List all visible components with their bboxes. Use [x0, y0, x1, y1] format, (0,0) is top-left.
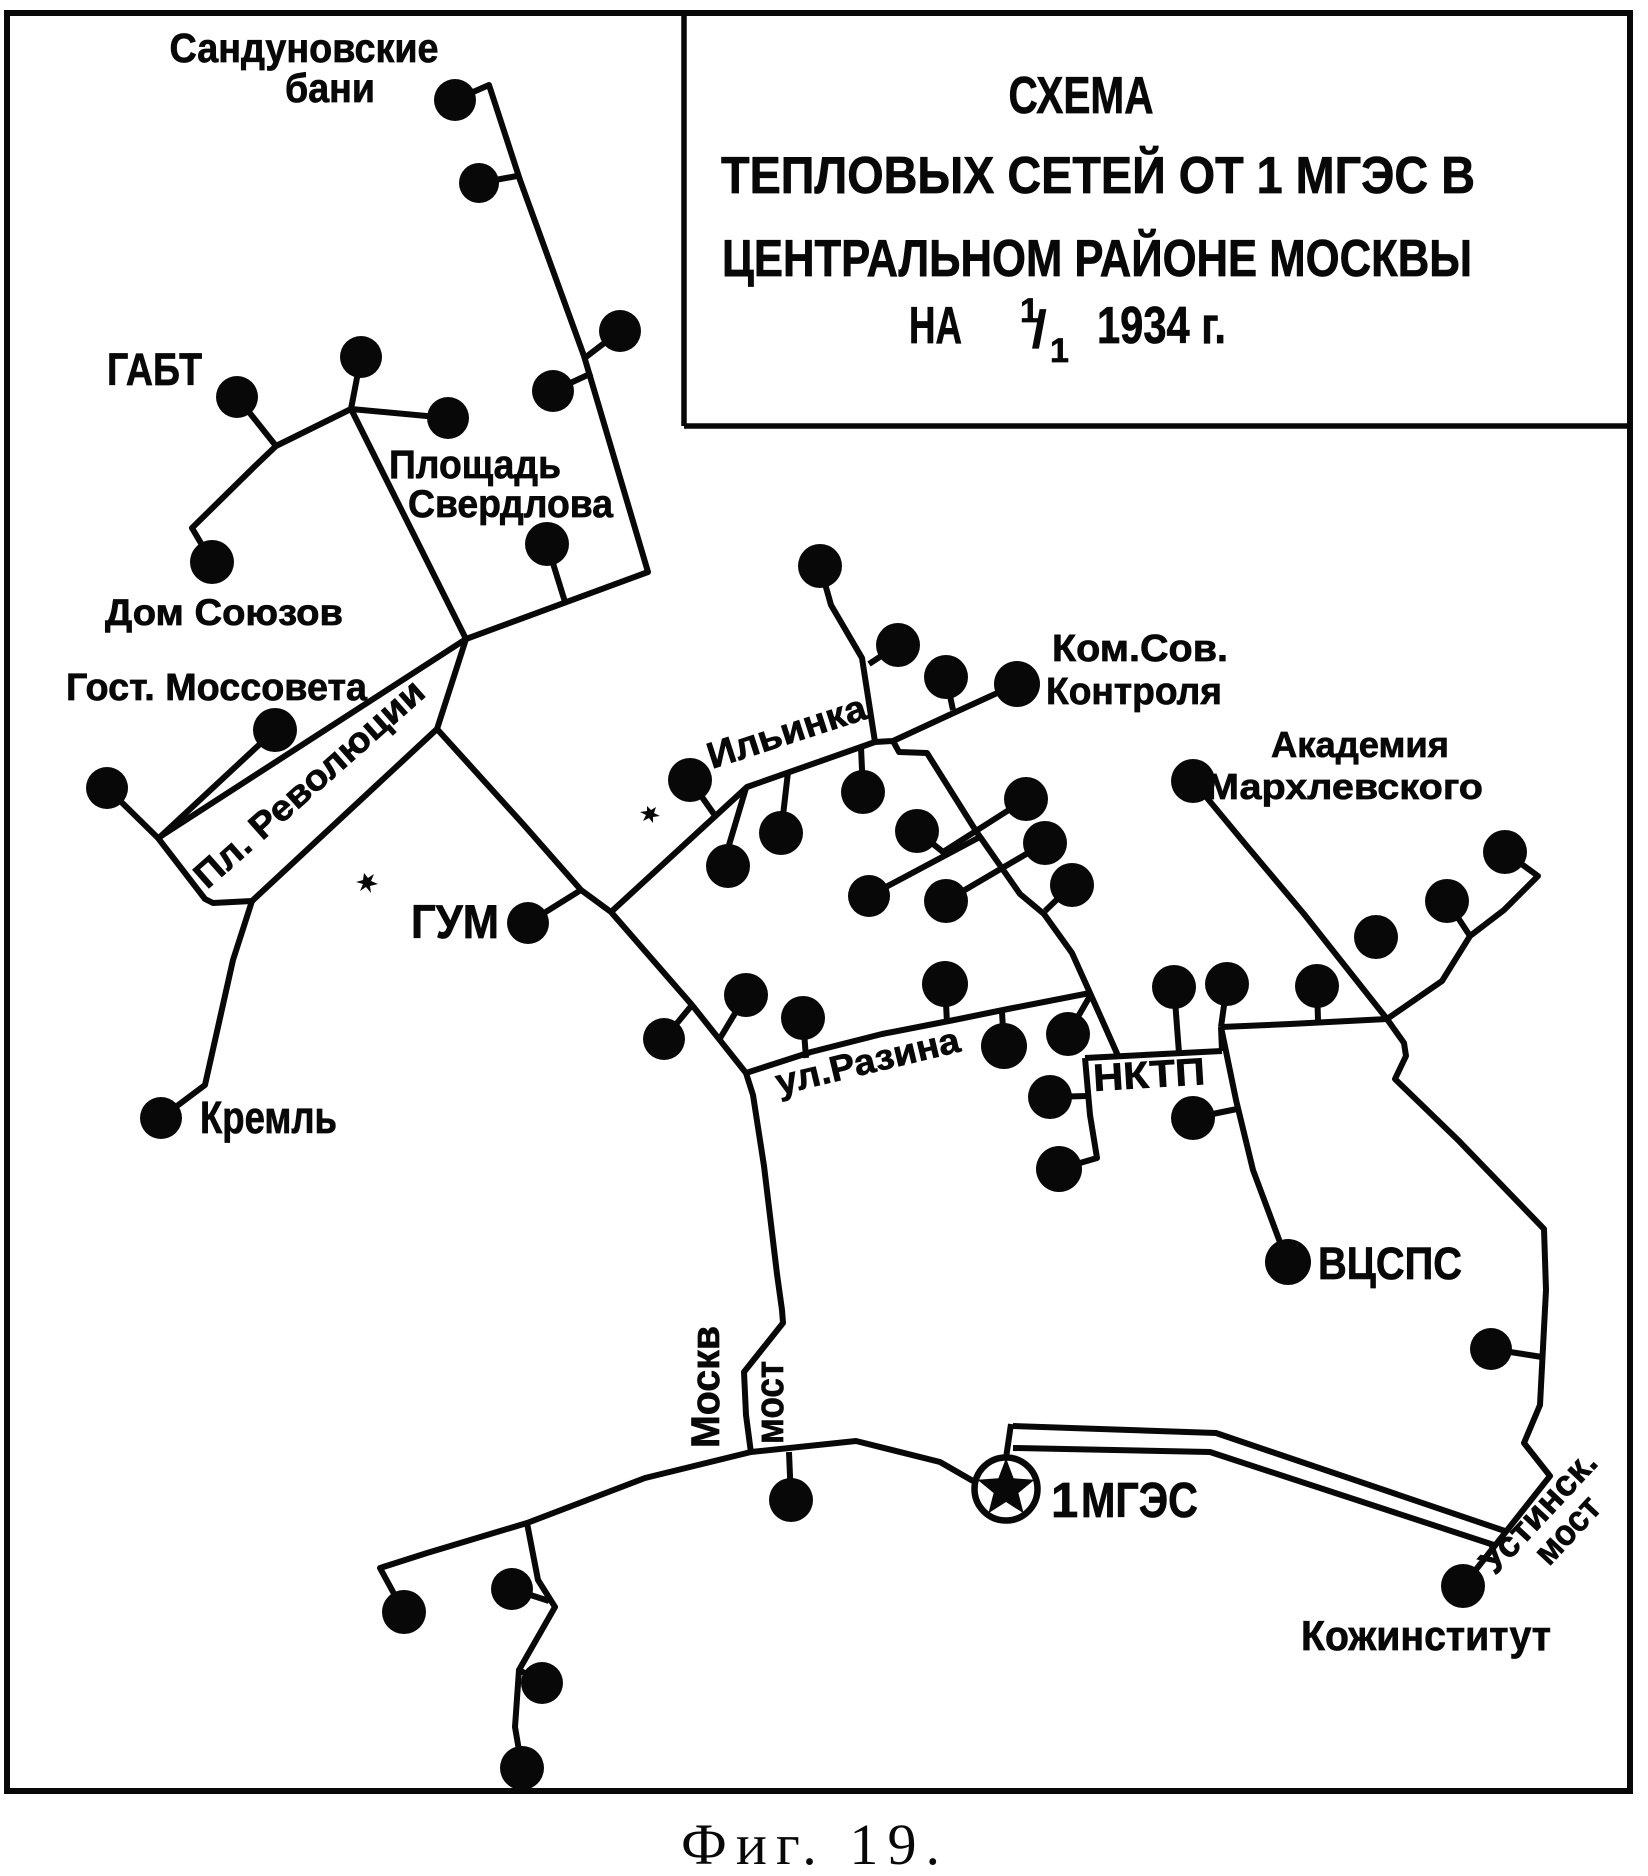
svg-text:СХЕМА: СХЕМА: [1009, 67, 1154, 125]
svg-text:бани: бани: [285, 65, 375, 111]
svg-text:1: 1: [1051, 1474, 1078, 1528]
svg-text:Гост. Моссовета: Гост. Моссовета: [66, 667, 368, 709]
svg-text:Площадь: Площадь: [389, 443, 561, 487]
svg-text:Академия: Академия: [1271, 724, 1449, 765]
svg-text:НА: НА: [909, 297, 962, 355]
svg-text:Мархлевского: Мархлевского: [1206, 766, 1483, 807]
svg-text:Свердлова: Свердлова: [408, 483, 613, 526]
svg-text:ГАБТ: ГАБТ: [107, 344, 202, 395]
svg-text:Дом Союзов: Дом Союзов: [105, 592, 343, 633]
svg-text:ЦЕНТРАЛЬНОМ РАЙОНЕ МОСКВЫ: ЦЕНТРАЛЬНОМ РАЙОНЕ МОСКВЫ: [722, 229, 1472, 288]
svg-text:ГУМ: ГУМ: [411, 895, 499, 948]
svg-text:1934 г.: 1934 г.: [1097, 297, 1226, 355]
svg-text:НКТП: НКТП: [1092, 1051, 1206, 1100]
svg-text:Ком.Сов.: Ком.Сов.: [1052, 628, 1228, 670]
svg-text:Москв: Москв: [684, 1326, 728, 1448]
svg-text:Кожинститут: Кожинститут: [1301, 1612, 1551, 1659]
svg-text:Кремль: Кремль: [200, 1092, 337, 1143]
svg-text:/: /: [1032, 301, 1046, 359]
svg-text:МГЭС: МГЭС: [1081, 1474, 1198, 1528]
svg-text:ВЦСПС: ВЦСПС: [1318, 1238, 1462, 1289]
svg-text:1: 1: [1050, 332, 1069, 370]
svg-text:Ильинка: Ильинка: [702, 686, 872, 776]
svg-text:мост: мост: [748, 1361, 792, 1444]
svg-text:ТЕПЛОВЫХ СЕТЕЙ ОТ 1 МГЭС В: ТЕПЛОВЫХ СЕТЕЙ ОТ 1 МГЭС В: [721, 146, 1475, 205]
svg-text:Фиг. 19.: Фиг. 19.: [681, 1812, 940, 1876]
svg-text:Контроля: Контроля: [1046, 671, 1222, 713]
